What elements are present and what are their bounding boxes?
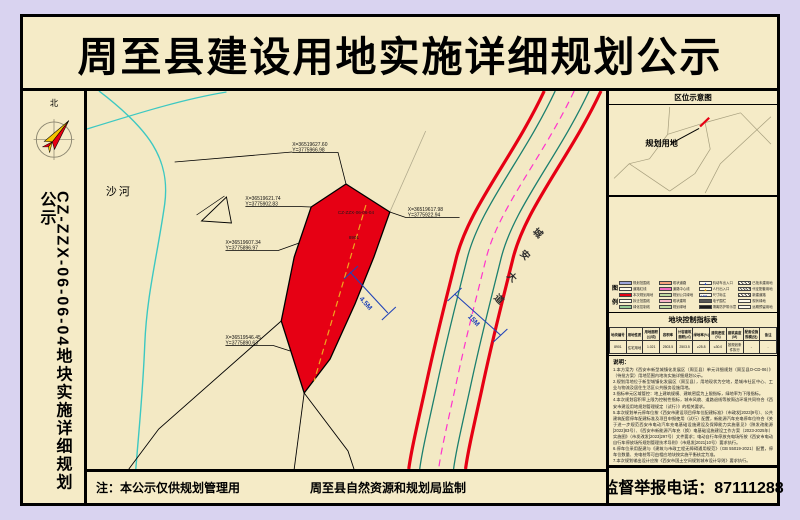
- notes-title: 说明：: [613, 358, 773, 366]
- table-data-row: 8901 住宅用地 1.021 2503.5 2503.5 ≥25.8 ≤30.…: [610, 341, 777, 354]
- control-index-table-box: 地块控制指标表 地块编号 用地性质 用地面积(公顷) 容积率 计容建筑面积(㎡)…: [609, 313, 777, 356]
- legend-swatch: [738, 281, 751, 285]
- legend-swatch: [738, 293, 751, 297]
- table-header-row: 地块编号 用地性质 用地面积(公顷) 容积率 计容建筑面积(㎡) 绿地率(%) …: [610, 328, 777, 341]
- legend-swatch: [699, 287, 712, 291]
- boundary-line: [129, 321, 281, 469]
- notes-section: 说明： 1.本方案为《西安市新型城镇化发展区（周至县）单元详细规划（周至县O-C…: [609, 356, 777, 465]
- page-title: 周至县建设用地实施详细规划公示: [78, 23, 723, 83]
- title-bar: 周至县建设用地实施详细规划公示: [23, 17, 777, 91]
- planning-parcel: [281, 184, 390, 393]
- producer-label: 周至县自然资源和规划局监制: [310, 479, 466, 496]
- control-index-table: 地块编号 用地性质 用地面积(公顷) 容积率 计容建筑面积(㎡) 绿地率(%) …: [609, 327, 777, 354]
- note-line: 4.本次规划容积率上限为控制性指标，城市风貌、道路退线等按周边环境共同符合《西安…: [613, 397, 773, 409]
- coord-leader: [292, 153, 346, 185]
- legend-swatch: [738, 305, 751, 309]
- legend-item: 绿化控制线: [619, 304, 657, 309]
- legend-item: 人行出入口: [699, 286, 737, 291]
- boundary-line: [304, 393, 354, 469]
- legend-item: 现状绿地: [738, 298, 776, 303]
- river-label: 沙河: [106, 185, 132, 198]
- legend-swatch: [659, 281, 672, 285]
- north-label: 北: [49, 98, 58, 108]
- table-title: 地块控制指标表: [609, 313, 777, 327]
- legend-swatch: [659, 305, 672, 309]
- planned-site-label: 规划用地: [645, 138, 677, 148]
- location-map-title: 区位示意图: [609, 91, 777, 105]
- legend-swatch: [619, 287, 632, 291]
- legend-item: 远期预留用地: [738, 304, 776, 309]
- north-compass-icon: 北: [24, 95, 84, 175]
- legend-item: 道路红线: [619, 286, 657, 291]
- footer-strip: 注：本公示仅供规划管理用 周至县自然资源和规划局监制: [87, 469, 606, 503]
- legend-item: 电子围栏: [699, 298, 737, 303]
- boundary-triangle: [202, 197, 232, 223]
- note-line: 2.规划用地位于新型城镇化发展区（周至县），用地现状为空地，是城市社区中心、工业…: [613, 379, 773, 391]
- legend-swatch: [699, 281, 712, 285]
- svg-text:城: 城: [530, 226, 546, 242]
- road-lane-line: [420, 91, 555, 469]
- legend-item: 规划绿地: [659, 304, 697, 309]
- legend-item: 现状道路: [659, 280, 697, 285]
- legend-item: 新建道路: [738, 292, 776, 297]
- legend: 图 例 规划范围线 道路红线 本次规划用地 拆迁范围线 绿化控制线 现状道路 道…: [611, 280, 776, 309]
- legend-item: 本次规划用地: [619, 292, 657, 297]
- legend-box: 图 例 规划范围线 道路红线 本次规划用地 拆迁范围线 绿化控制线 现状道路 道…: [609, 197, 777, 313]
- legend-swatch: [659, 299, 672, 303]
- legend-swatch: [619, 305, 632, 309]
- boundary-line-faint: [390, 131, 426, 212]
- legend-item: 拆迁范围线: [619, 298, 657, 303]
- location-map-svg: 规划用地: [609, 105, 777, 195]
- plan-map-svg: 沙河 CZ-ZZX-06-06-04 8901: [87, 91, 606, 469]
- boundary-line: [175, 152, 293, 162]
- location-map: 规划用地: [609, 105, 777, 195]
- legend-item: 尺寸标注: [699, 292, 737, 297]
- legend-swatch: [619, 299, 632, 303]
- road-edge-right: [466, 91, 601, 469]
- location-map-box: 区位示意图 规划用地: [609, 91, 777, 197]
- hotline-label: 监督举报电话：87111288: [602, 474, 783, 498]
- legend-swatch: [738, 287, 751, 291]
- legend-item: 已批未建用地: [738, 280, 776, 285]
- poster-frame: 周至县建设用地实施详细规划公示 北 CZ-ZZX-06-06-04地块实施详细规…: [20, 14, 780, 506]
- river-line: [99, 91, 166, 469]
- legend-item: 隔离防护带示意: [699, 304, 737, 309]
- legend-swatch: [619, 281, 632, 285]
- road-group: [409, 91, 601, 469]
- location-road-network: [614, 107, 771, 193]
- legend-swatch: [699, 293, 712, 297]
- legend-item: 代征配套用地: [738, 286, 776, 291]
- note-line: 1.本方案为《西安市新型城镇化发展区（周至县）单元详细规划（周至县O-CD-06…: [613, 367, 773, 379]
- legend-title: 图 例: [611, 280, 619, 309]
- legend-swatch: [738, 299, 751, 303]
- legend-item: 规划范围线: [619, 280, 657, 285]
- hotline-box: 监督举报电话：87111288: [609, 465, 777, 503]
- plot-code-vertical: CZ-ZZX-06-06-04地块实施详细规划公示: [38, 191, 70, 503]
- plan-map: 沙河 CZ-ZZX-06-06-04 8901: [87, 91, 606, 469]
- usage-note: 注：本公示仅供规划管理用: [87, 479, 240, 496]
- main-column: 沙河 CZ-ZZX-06-06-04 8901: [87, 91, 609, 503]
- legend-swatch: [659, 287, 672, 291]
- legend-grid: 规划范围线 道路红线 本次规划用地 拆迁范围线 绿化控制线 现状道路 道路中心线…: [619, 280, 776, 309]
- legend-swatch: [659, 293, 672, 297]
- parcel-code-label: CZ-ZZX-06-06-04: [338, 210, 375, 215]
- note-line: 6.停车位采用配建与《建筑与市政工程无障碍通用规范》（GB 55019-2021…: [613, 446, 773, 458]
- right-panel: 区位示意图 规划用地: [609, 91, 777, 503]
- legend-item: 机动车出入口: [699, 280, 737, 285]
- note-line: 5.本次规划单元停车位按《西安市建设项目停车位配建标准》（市政发[2023]9号…: [613, 410, 773, 447]
- parcel-number-label: 8901: [349, 235, 360, 240]
- dimension-label-parcel: 4.5M: [357, 296, 373, 312]
- legend-item: 规划公共绿地: [659, 292, 697, 297]
- legend-item: 道路中心线: [659, 286, 697, 291]
- legend-swatch: [699, 299, 712, 303]
- svg-text:安: 安: [517, 248, 533, 264]
- legend-swatch: [699, 305, 712, 309]
- boundary-line: [294, 393, 304, 469]
- left-sidebar: 北 CZ-ZZX-06-06-04地块实施详细规划公示: [23, 91, 87, 503]
- legend-item: 现状建筑: [659, 298, 697, 303]
- legend-swatch: [619, 293, 632, 297]
- body-row: 北 CZ-ZZX-06-06-04地块实施详细规划公示 沙河: [23, 91, 777, 503]
- note-line: 7.本次规划输出设计应按《西安市国土空间规划城市设计导则》要求执行。: [613, 458, 773, 464]
